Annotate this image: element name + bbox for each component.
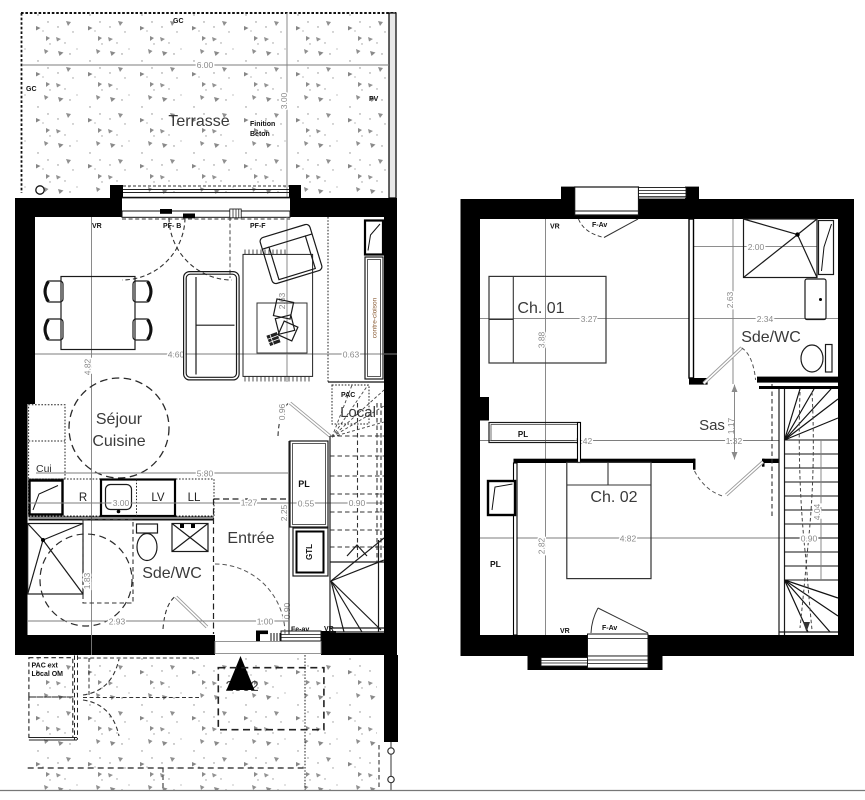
svg-text:PF-F: PF-F: [250, 223, 266, 230]
svg-text:Finition: Finition: [250, 121, 275, 128]
svg-text:PL: PL: [518, 430, 528, 439]
svg-text:2.00: 2.00: [748, 242, 765, 252]
svg-text:2.93: 2.93: [109, 617, 126, 627]
svg-text:GC: GC: [26, 86, 37, 93]
svg-text:4.60: 4.60: [168, 350, 185, 360]
svg-text:2.34: 2.34: [757, 314, 774, 324]
svg-text:VR: VR: [560, 628, 570, 635]
svg-text:0.90: 0.90: [801, 534, 818, 544]
svg-text:VR: VR: [324, 626, 334, 633]
svg-text:0.63: 0.63: [343, 350, 360, 360]
svg-text:4.82: 4.82: [83, 358, 93, 375]
svg-text:Sde/WC: Sde/WC: [142, 565, 202, 582]
svg-text:PL: PL: [490, 559, 501, 569]
svg-text:Local OM: Local OM: [32, 671, 64, 678]
svg-text:Sde/WC: Sde/WC: [741, 329, 801, 346]
svg-text:Sas: Sas: [699, 417, 725, 434]
svg-text:1.83: 1.83: [82, 572, 92, 589]
svg-text:PF- B: PF- B: [163, 223, 181, 230]
svg-text:LL: LL: [188, 492, 201, 504]
svg-text:F-Av: F-Av: [592, 222, 607, 229]
svg-text:LV: LV: [151, 492, 165, 504]
svg-text:4.04: 4.04: [812, 503, 822, 520]
svg-text:Séjour: Séjour: [96, 411, 143, 428]
svg-text:5.80: 5.80: [197, 469, 214, 479]
svg-text:3.00: 3.00: [279, 92, 289, 109]
svg-text:6.00: 6.00: [197, 60, 214, 70]
svg-text:Entrée: Entrée: [227, 530, 274, 547]
svg-text:F-Av: F-Av: [602, 625, 617, 632]
svg-text:2.25: 2.25: [279, 504, 289, 521]
svg-text:2.82: 2.82: [537, 537, 547, 554]
svg-text:contre-cloison: contre-cloison: [372, 297, 379, 338]
svg-text:3.88: 3.88: [537, 331, 547, 348]
svg-text:Terrasse: Terrasse: [168, 113, 229, 130]
svg-text:3.00: 3.00: [113, 498, 130, 508]
svg-text:4.82: 4.82: [620, 534, 637, 544]
svg-text:R: R: [79, 492, 87, 504]
svg-text:1.00: 1.00: [257, 617, 274, 627]
svg-text:Ch. 01: Ch. 01: [517, 300, 564, 317]
svg-text:Cuisine: Cuisine: [92, 433, 145, 450]
svg-text:VR: VR: [92, 223, 102, 230]
svg-text:0.96: 0.96: [277, 403, 287, 420]
svg-text:PAC ext: PAC ext: [32, 663, 59, 670]
svg-text:2.63: 2.63: [725, 291, 735, 308]
svg-text:PV: PV: [369, 96, 379, 103]
svg-text:Fe-av: Fe-av: [291, 627, 309, 634]
svg-text:PAC: PAC: [341, 392, 355, 399]
svg-text:VR: VR: [550, 224, 560, 231]
svg-text:PL: PL: [298, 479, 310, 489]
svg-text:0.90: 0.90: [282, 602, 292, 619]
svg-text:GTL: GTL: [305, 544, 314, 560]
svg-text:Local: Local: [340, 404, 376, 421]
svg-text:Ch. 02: Ch. 02: [590, 489, 637, 506]
svg-text:0.90: 0.90: [349, 498, 366, 508]
svg-text:GC: GC: [173, 18, 184, 25]
svg-text:Béton: Béton: [250, 131, 270, 138]
svg-text:0.55: 0.55: [298, 499, 315, 509]
svg-text:3.27: 3.27: [581, 314, 598, 324]
svg-text:1.27: 1.27: [241, 498, 258, 508]
